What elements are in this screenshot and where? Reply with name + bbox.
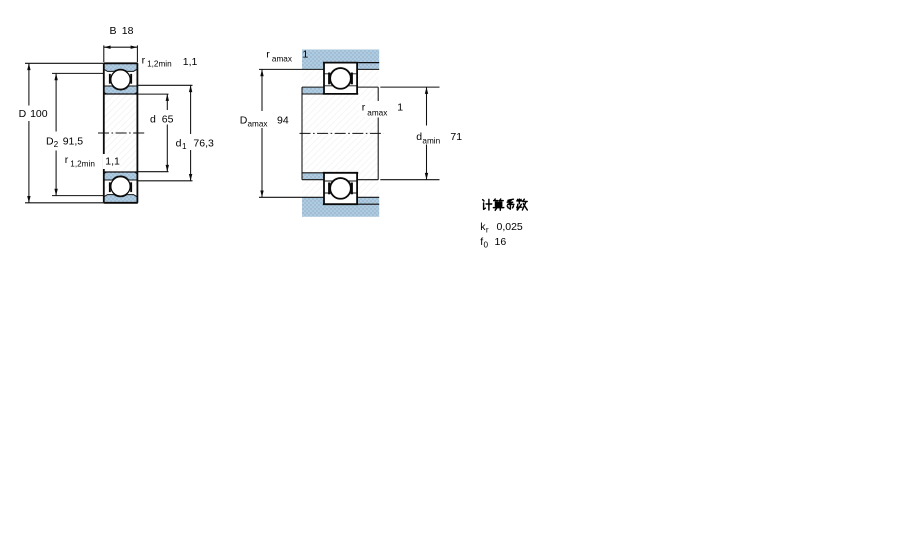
svg-text:D: D — [19, 108, 27, 120]
svg-text:r: r — [65, 154, 69, 166]
svg-text:94: 94 — [277, 114, 289, 126]
svg-text:0: 0 — [484, 241, 489, 250]
svg-text:D: D — [240, 114, 248, 126]
svg-text:r: r — [266, 49, 270, 61]
svg-text:B: B — [110, 25, 117, 37]
svg-text:amax: amax — [367, 109, 387, 118]
svg-text:18: 18 — [122, 25, 134, 37]
svg-text:r: r — [486, 225, 489, 234]
svg-text:d: d — [176, 138, 182, 150]
svg-text:76,3: 76,3 — [193, 138, 214, 150]
svg-text:amin: amin — [422, 136, 440, 145]
svg-text:1,1: 1,1 — [105, 155, 120, 167]
svg-text:d: d — [150, 113, 156, 125]
svg-text:1,2min: 1,2min — [147, 60, 172, 69]
svg-text:r: r — [142, 54, 146, 66]
svg-text:65: 65 — [162, 113, 174, 125]
svg-text:1,1: 1,1 — [183, 56, 198, 68]
svg-text:0,025: 0,025 — [497, 221, 523, 233]
svg-text:71: 71 — [450, 131, 462, 143]
svg-text:1: 1 — [302, 48, 308, 60]
svg-text:r: r — [362, 102, 366, 114]
svg-text:1: 1 — [397, 102, 403, 114]
svg-text:16: 16 — [495, 236, 507, 248]
svg-text:1,2min: 1,2min — [70, 159, 95, 168]
svg-text:amax: amax — [248, 120, 268, 129]
svg-text:amax: amax — [272, 54, 292, 63]
svg-text:100: 100 — [30, 108, 48, 120]
svg-text:91,5: 91,5 — [63, 135, 84, 147]
svg-text:d: d — [416, 131, 422, 143]
svg-text:1: 1 — [182, 142, 187, 151]
svg-text:2: 2 — [54, 140, 59, 149]
